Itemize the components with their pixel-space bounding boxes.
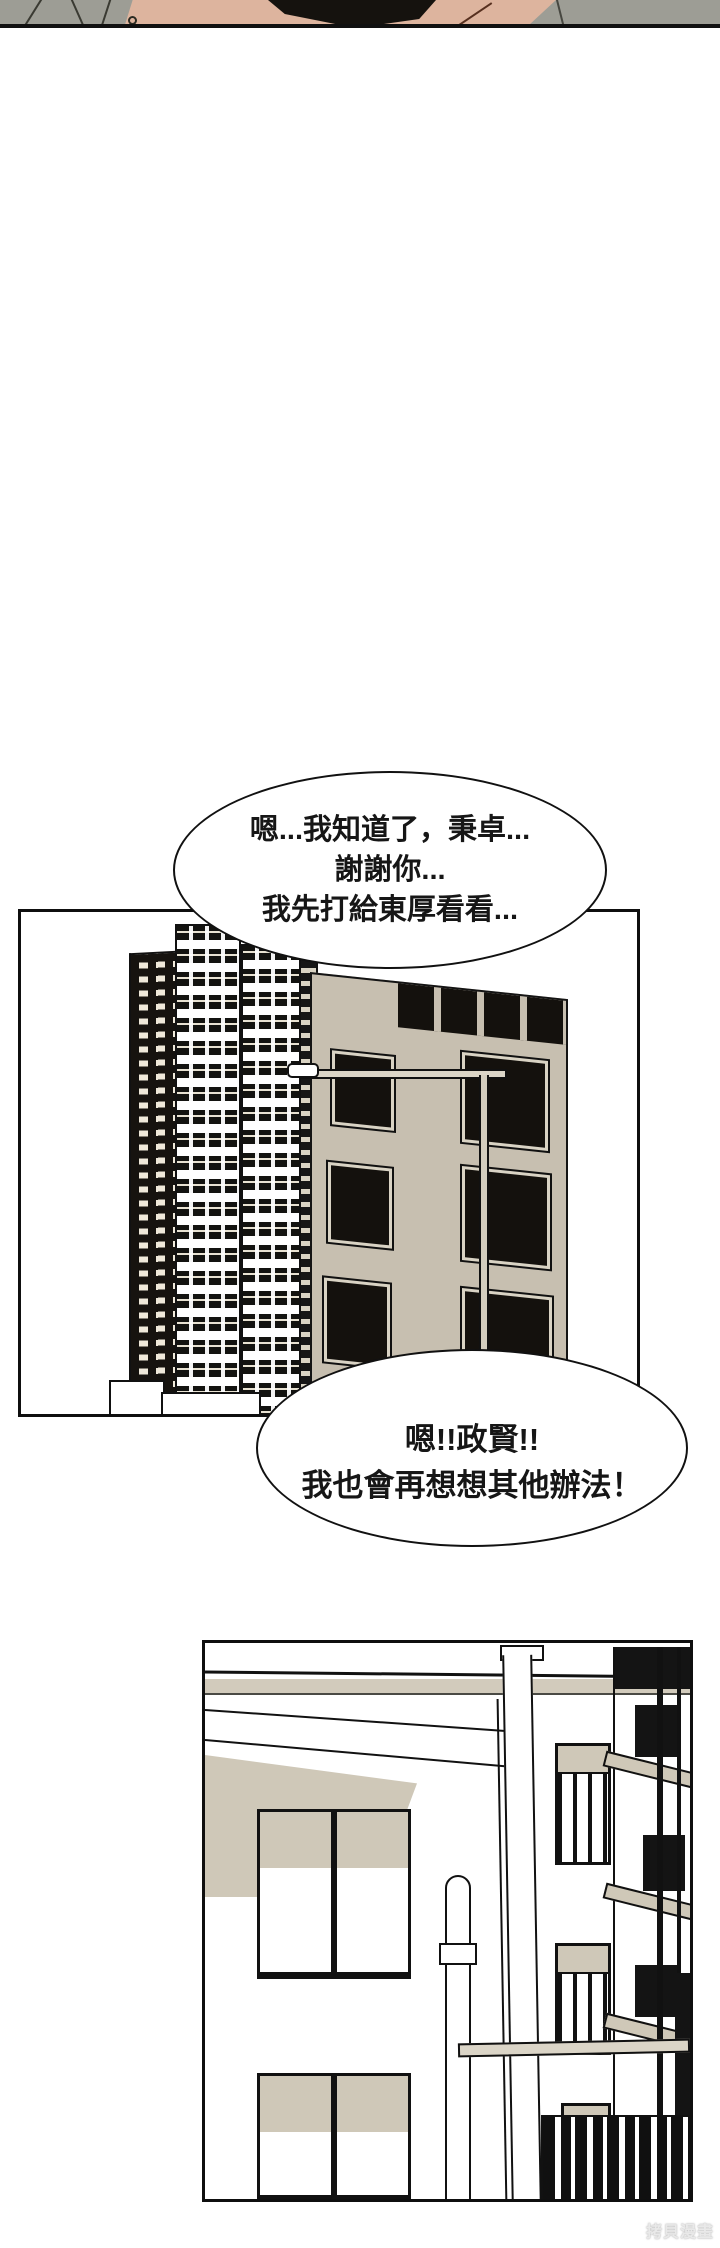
comic-page: 嗯...我知道了，秉卓... 謝謝你... 我先打給東厚看看... 嗯!!政賢!…: [0, 0, 720, 2248]
watermark-text: 拷貝漫畫: [646, 2218, 714, 2242]
speech-bubble-1: 嗯...我知道了，秉卓... 謝謝你... 我先打給東厚看看...: [173, 771, 607, 969]
street-lamp-arm: [301, 1069, 507, 1079]
bubble-1-line-3: 我先打給東厚看看...: [262, 890, 518, 930]
building-window: [332, 1050, 394, 1131]
building-window: [257, 1809, 411, 1979]
chimney-column: [502, 1655, 542, 2202]
street-lamp-head: [287, 1063, 319, 1078]
bubble-1-line-2: 謝謝你...: [334, 850, 445, 890]
tower-b: [241, 944, 301, 1417]
storefront-detail: [541, 2115, 690, 2202]
window-shade: [558, 1946, 608, 1974]
beige-building-top-windows: [398, 983, 568, 1045]
street-rail-beam: [458, 2039, 690, 2058]
window-shade: [558, 1746, 608, 1774]
city-panel-towers: [18, 909, 640, 1417]
character-ear: [128, 16, 137, 25]
shoulder-seam-line: [555, 0, 568, 28]
bubble-2-line-1: 嗯!!政賢!!: [405, 1417, 539, 1463]
clothing-fold-line: [98, 0, 112, 28]
top-cropped-panel: [0, 0, 720, 28]
tower-a: [175, 924, 241, 1417]
building-window: [328, 1162, 392, 1249]
tower-base-structure: [109, 1380, 165, 1417]
building-window: [462, 1166, 550, 1269]
window-mullion: [331, 1812, 337, 1972]
dark-window: [635, 1705, 677, 1757]
speech-bubble-2: 嗯!!政賢!! 我也會再想想其他辦法！: [256, 1349, 688, 1547]
city-panel-street: [202, 1640, 693, 2202]
bubble-1-line-1: 嗯...我知道了，秉卓...: [250, 810, 530, 850]
bubble-2-line-2: 我也會再想想其他辦法！: [302, 1463, 643, 1509]
clothing-fold-line: [20, 0, 43, 28]
tower-base-structure: [161, 1392, 261, 1417]
drain-pipe: [445, 1875, 471, 2202]
building-window: [257, 2073, 411, 2202]
tower-left-face: [129, 951, 177, 1417]
drain-pipe-joint: [439, 1943, 477, 1965]
building-window: [324, 1277, 390, 1368]
roof-perspective-line: [205, 1709, 524, 1733]
building-window: [462, 1052, 548, 1151]
clothing-fold-line: [69, 0, 89, 28]
window-mullion: [331, 2076, 337, 2195]
railed-window: [555, 1943, 611, 2055]
